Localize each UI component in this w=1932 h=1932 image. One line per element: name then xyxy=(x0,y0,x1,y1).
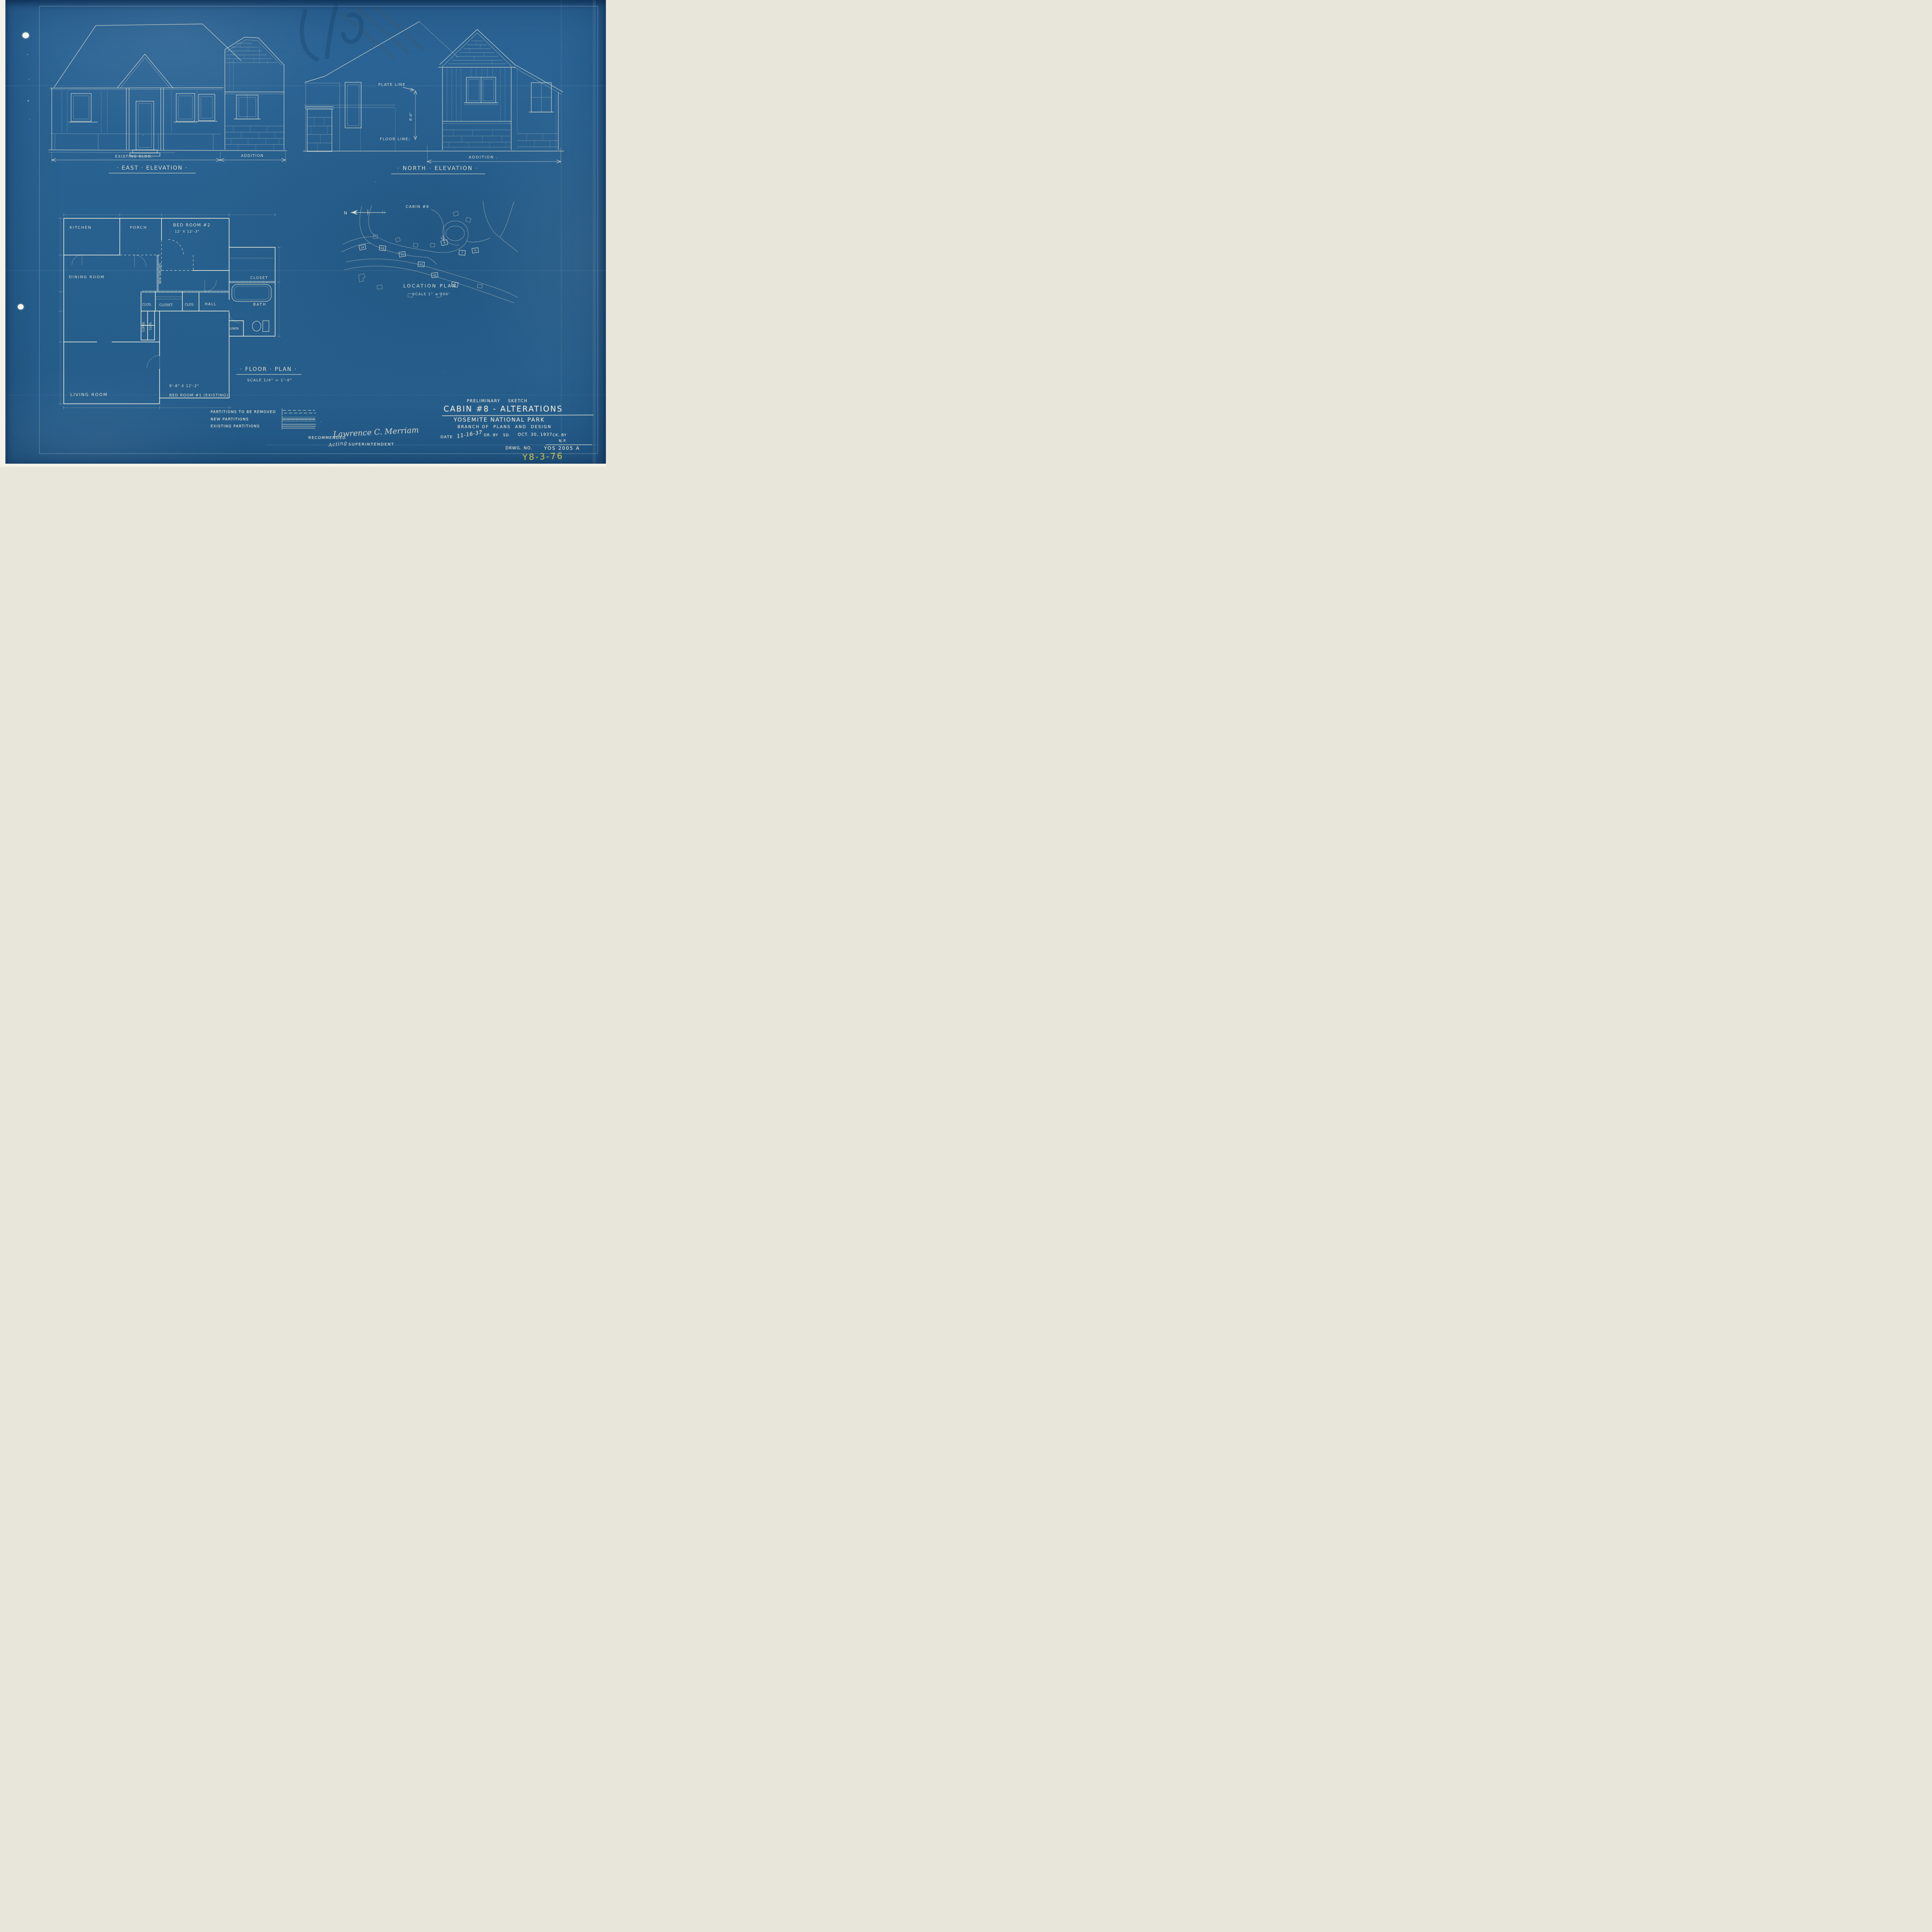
room-closet-wing: CLOSET xyxy=(250,276,268,280)
east-title: · EAST · ELEVATION · xyxy=(109,165,196,173)
plan-title: · FLOOR · PLAN · SCALE 1/4" = 1'-0" xyxy=(236,366,301,383)
north-title: · NORTH · ELEVATION · xyxy=(391,165,485,174)
legend-symbol-dashed xyxy=(281,409,316,415)
location-plan-scale: SCALE 1" = 200' xyxy=(413,293,450,296)
plan-door-swings xyxy=(72,255,240,368)
title-cabin8-alterations: CABIN #8 - ALTERATIONS xyxy=(444,404,563,413)
legend-row-new: NEW PARTITIONS xyxy=(211,416,316,422)
cabin-11: 11 xyxy=(418,262,425,267)
cabin-6: 6 xyxy=(472,248,479,253)
floor-plan-scale: SCALE 1/4" = 1'-0" xyxy=(247,378,293,383)
punch-hole-top xyxy=(22,32,29,38)
drawing-no-label: DRWG. NO. xyxy=(505,446,532,451)
floor-plan-drawing: KITCHEN PORCH BED ROOM #2 12' X 12'-3" D… xyxy=(58,213,313,417)
svg-text:8: 8 xyxy=(443,241,446,245)
legend-label-new: NEW PARTITIONS xyxy=(211,417,281,422)
floor-plan-title: · FLOOR · PLAN · xyxy=(240,366,297,372)
plan-room-labels: KITCHEN PORCH BED ROOM #2 12' X 12'-3" D… xyxy=(69,223,268,398)
svg-text:13: 13 xyxy=(381,247,384,250)
drawing-no-value: YOS 2005 A xyxy=(544,445,580,451)
room-bedroom1-size: 9'-8" X 12'-2" xyxy=(169,384,199,388)
title-preliminary-sketch: PRELIMINARY SKETCH xyxy=(467,399,528,403)
svg-text:11: 11 xyxy=(419,263,423,266)
legend-symbol-solid xyxy=(281,423,316,429)
drawn-by-value: SD. xyxy=(503,433,510,437)
room-cupbd: CUPBD. xyxy=(142,321,145,332)
north-letter: N xyxy=(344,211,347,216)
north-addition-label: ADDITION . xyxy=(469,155,498,160)
east-existing-bldg-label: EXISTING BLDG. xyxy=(115,155,153,159)
east-porch xyxy=(117,54,173,156)
room-kitchen: KITCHEN xyxy=(70,226,92,230)
date-label: DATE xyxy=(440,435,453,439)
svg-text:10: 10 xyxy=(433,274,437,277)
svg-text:7: 7 xyxy=(461,251,463,254)
room-dining: DINING ROOM xyxy=(69,275,105,279)
cabin-7: 7 xyxy=(459,250,466,255)
east-elevation-title: · EAST · ELEVATION · xyxy=(117,165,188,171)
location-plan-drawing: N CABIN #8 14 13 12 11 10 9 8 7 6 xyxy=(339,198,525,310)
east-wall xyxy=(49,88,287,153)
room-clos-c: CLOS. xyxy=(185,303,194,307)
legend-label-existing: EXISTING PARTITIONS xyxy=(211,424,281,429)
room-living: LIVING ROOM xyxy=(70,392,108,397)
location-title: LOCATION PLAN SCALE 1" = 200' xyxy=(403,283,457,296)
plan-existing-walls xyxy=(64,218,275,404)
room-bedroom2-size: 12' X 12'-3" xyxy=(175,230,200,234)
room-bedroom1: BED ROOM #1 (EXISTING) xyxy=(169,393,228,398)
cabin-14: 14 xyxy=(359,244,366,250)
cabin8-callout-label: CABIN #8 xyxy=(406,205,429,209)
east-windows xyxy=(69,94,217,122)
blueprint-scan: EXISTING BLDG. ADDITION · EAST · ELEVATI… xyxy=(0,0,606,467)
title-yosemite: YOSEMITE NATIONAL PARK xyxy=(454,417,545,423)
room-clos-a: CLOS. xyxy=(142,303,152,307)
east-elevation-drawing: EXISTING BLDG. ADDITION · EAST · ELEVATI… xyxy=(43,6,302,176)
north-elevation-drawing: PLATE LINE 8'-4" FLOOR LINE; ADDITION . … xyxy=(303,5,569,177)
blueprint-sheet: EXISTING BLDG. ADDITION · EAST · ELEVATI… xyxy=(5,0,606,464)
room-bath: BATH xyxy=(253,303,267,307)
east-roof xyxy=(50,24,241,90)
title-date: OCT. 30, 1937 xyxy=(518,432,553,437)
room-linen: LINEN xyxy=(230,327,239,330)
north-annotations: PLATE LINE 8'-4" FLOOR LINE; ADDITION . xyxy=(378,83,561,164)
title-branch: BRANCH OF PLANS AND DESIGN xyxy=(457,425,552,429)
legend-symbol-hatched xyxy=(281,416,316,422)
room-bedroom2: BED ROOM #2 xyxy=(173,223,211,228)
location-cabin-callout: CABIN #8 xyxy=(406,205,444,240)
east-dimension-string: EXISTING BLDG. ADDITION xyxy=(52,152,286,162)
east-addition-label: ADDITION xyxy=(241,154,264,158)
svg-text:12: 12 xyxy=(400,253,404,256)
legend-label-removed: PARTITIONS TO BE REMOVED xyxy=(211,410,281,414)
location-plan-title: LOCATION PLAN xyxy=(403,283,457,289)
new-shelves-note: NEW SHELVES xyxy=(158,263,162,284)
svg-text:6: 6 xyxy=(474,249,476,252)
punch-hole-bottom xyxy=(18,304,24,310)
legend-row-existing: EXISTING PARTITIONS xyxy=(211,423,316,429)
north-shed-wing xyxy=(513,65,563,150)
svg-text:14: 14 xyxy=(361,246,365,250)
drawn-by-label: DR. BY xyxy=(484,433,498,437)
plan-fixtures xyxy=(155,258,273,332)
floor-line-label: FLOOR LINE; xyxy=(380,137,410,141)
plate-line-label: PLATE LINE xyxy=(378,83,406,87)
dust-specks xyxy=(27,54,28,55)
np-label: N.P. xyxy=(559,439,567,443)
north-addition-gable xyxy=(439,29,516,150)
room-hall: HALL xyxy=(205,302,216,306)
room-porch: PORCH xyxy=(130,226,147,230)
legend-row-removed: PARTITIONS TO BE REMOVED xyxy=(211,409,316,415)
location-north-arrow: N xyxy=(344,210,386,216)
cabin-8: 8 xyxy=(441,240,448,246)
room-clos-d: CLOS. xyxy=(149,321,152,330)
room-closet-b: CLOSET. xyxy=(159,303,173,307)
plan-removed-partitions xyxy=(120,240,193,270)
accession-number-stamp: Y8-3-76 xyxy=(522,451,564,463)
height-dimension: 8'-4" xyxy=(409,112,413,121)
cabin-12: 12 xyxy=(399,252,406,257)
checked-by-label: CK. BY xyxy=(553,433,567,437)
north-elevation-title: · NORTH · ELEVATION · xyxy=(397,165,478,172)
